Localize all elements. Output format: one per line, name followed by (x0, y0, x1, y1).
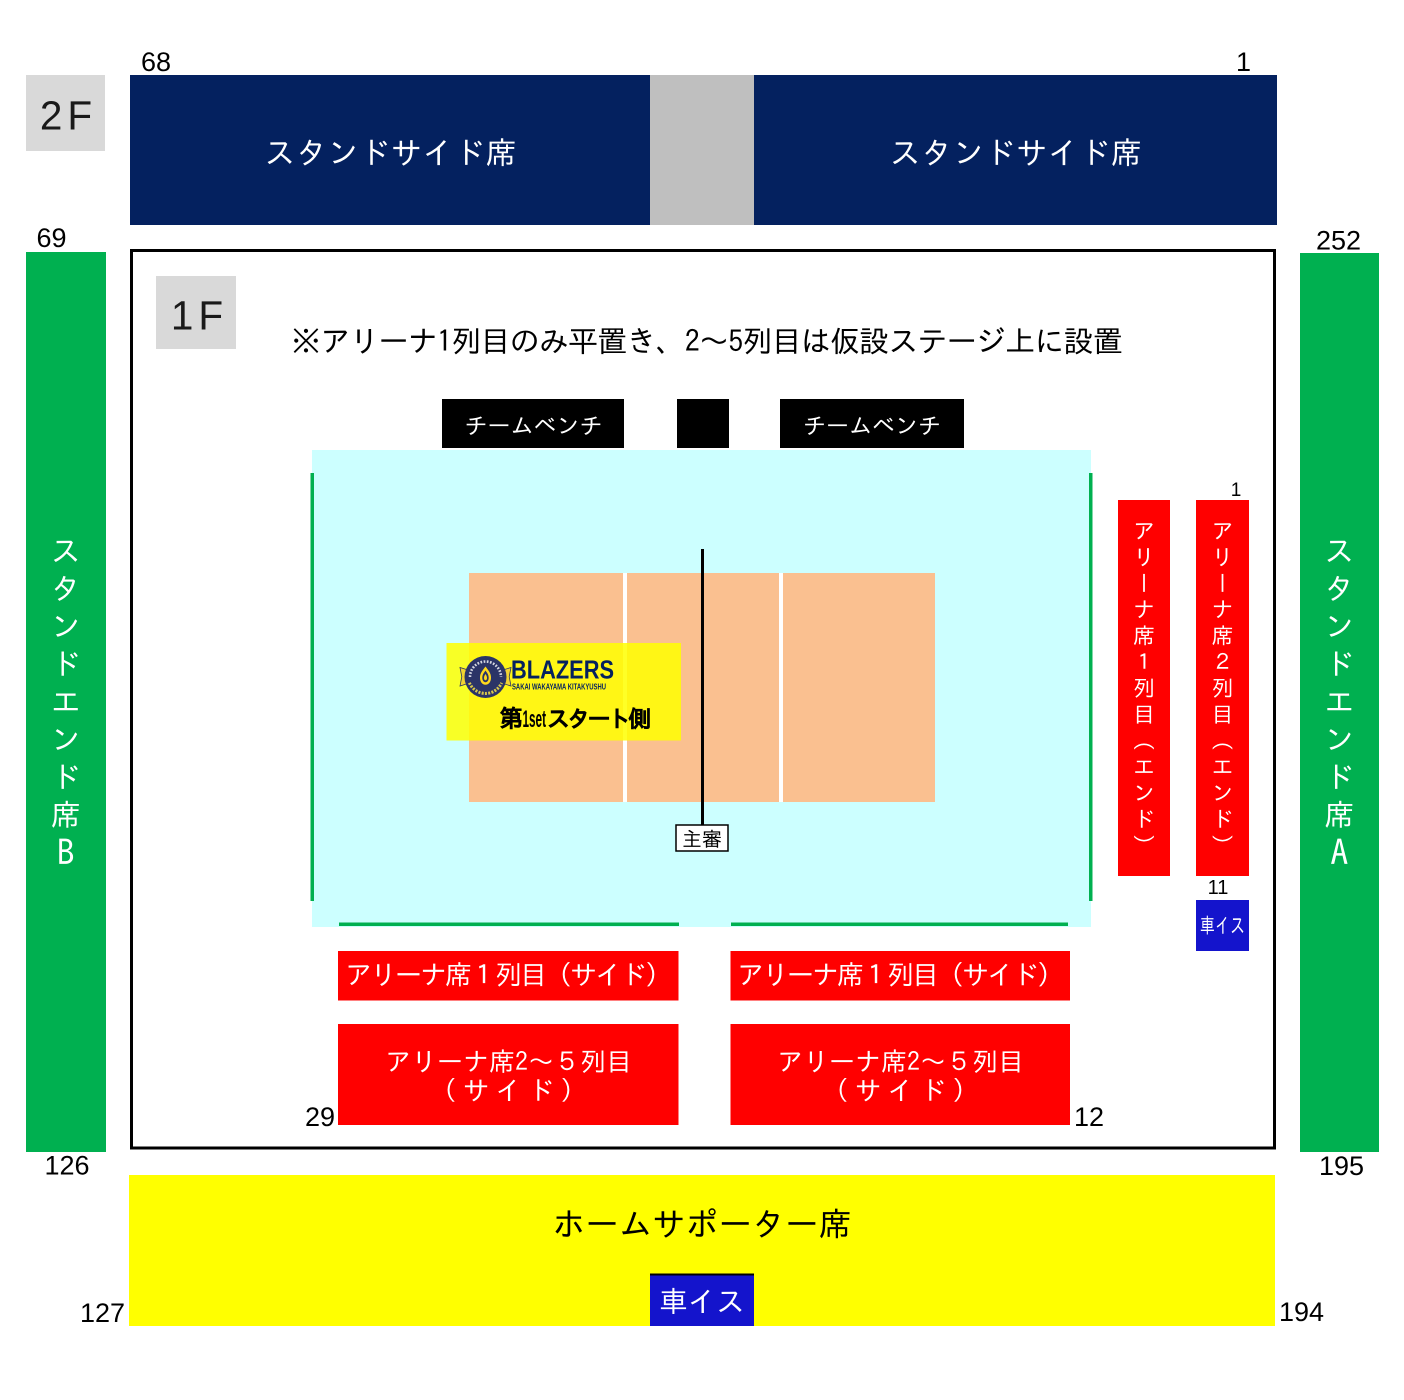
svg-text:69: 69 (37, 223, 67, 253)
svg-text:2F: 2F (40, 93, 97, 139)
svg-text:12: 12 (1074, 1102, 1104, 1132)
svg-text:SAKAI WAKAYAMA KITAKYUSHU: SAKAI WAKAYAMA KITAKYUSHU (512, 683, 606, 692)
svg-text:127: 127 (80, 1298, 125, 1328)
svg-text:1: 1 (1231, 480, 1242, 501)
svg-text:1set: 1set (523, 706, 547, 733)
svg-text:194: 194 (1279, 1297, 1324, 1327)
svg-text:1: 1 (1236, 47, 1251, 77)
svg-text:68: 68 (141, 47, 171, 77)
svg-text:252: 252 (1316, 226, 1361, 256)
svg-text:195: 195 (1319, 1151, 1364, 1181)
svg-text:126: 126 (45, 1150, 90, 1180)
svg-text:29: 29 (305, 1102, 335, 1132)
svg-text:1F: 1F (171, 293, 228, 339)
svg-text:BLAZERS: BLAZERS (511, 655, 614, 685)
svg-text:11: 11 (1208, 877, 1229, 899)
